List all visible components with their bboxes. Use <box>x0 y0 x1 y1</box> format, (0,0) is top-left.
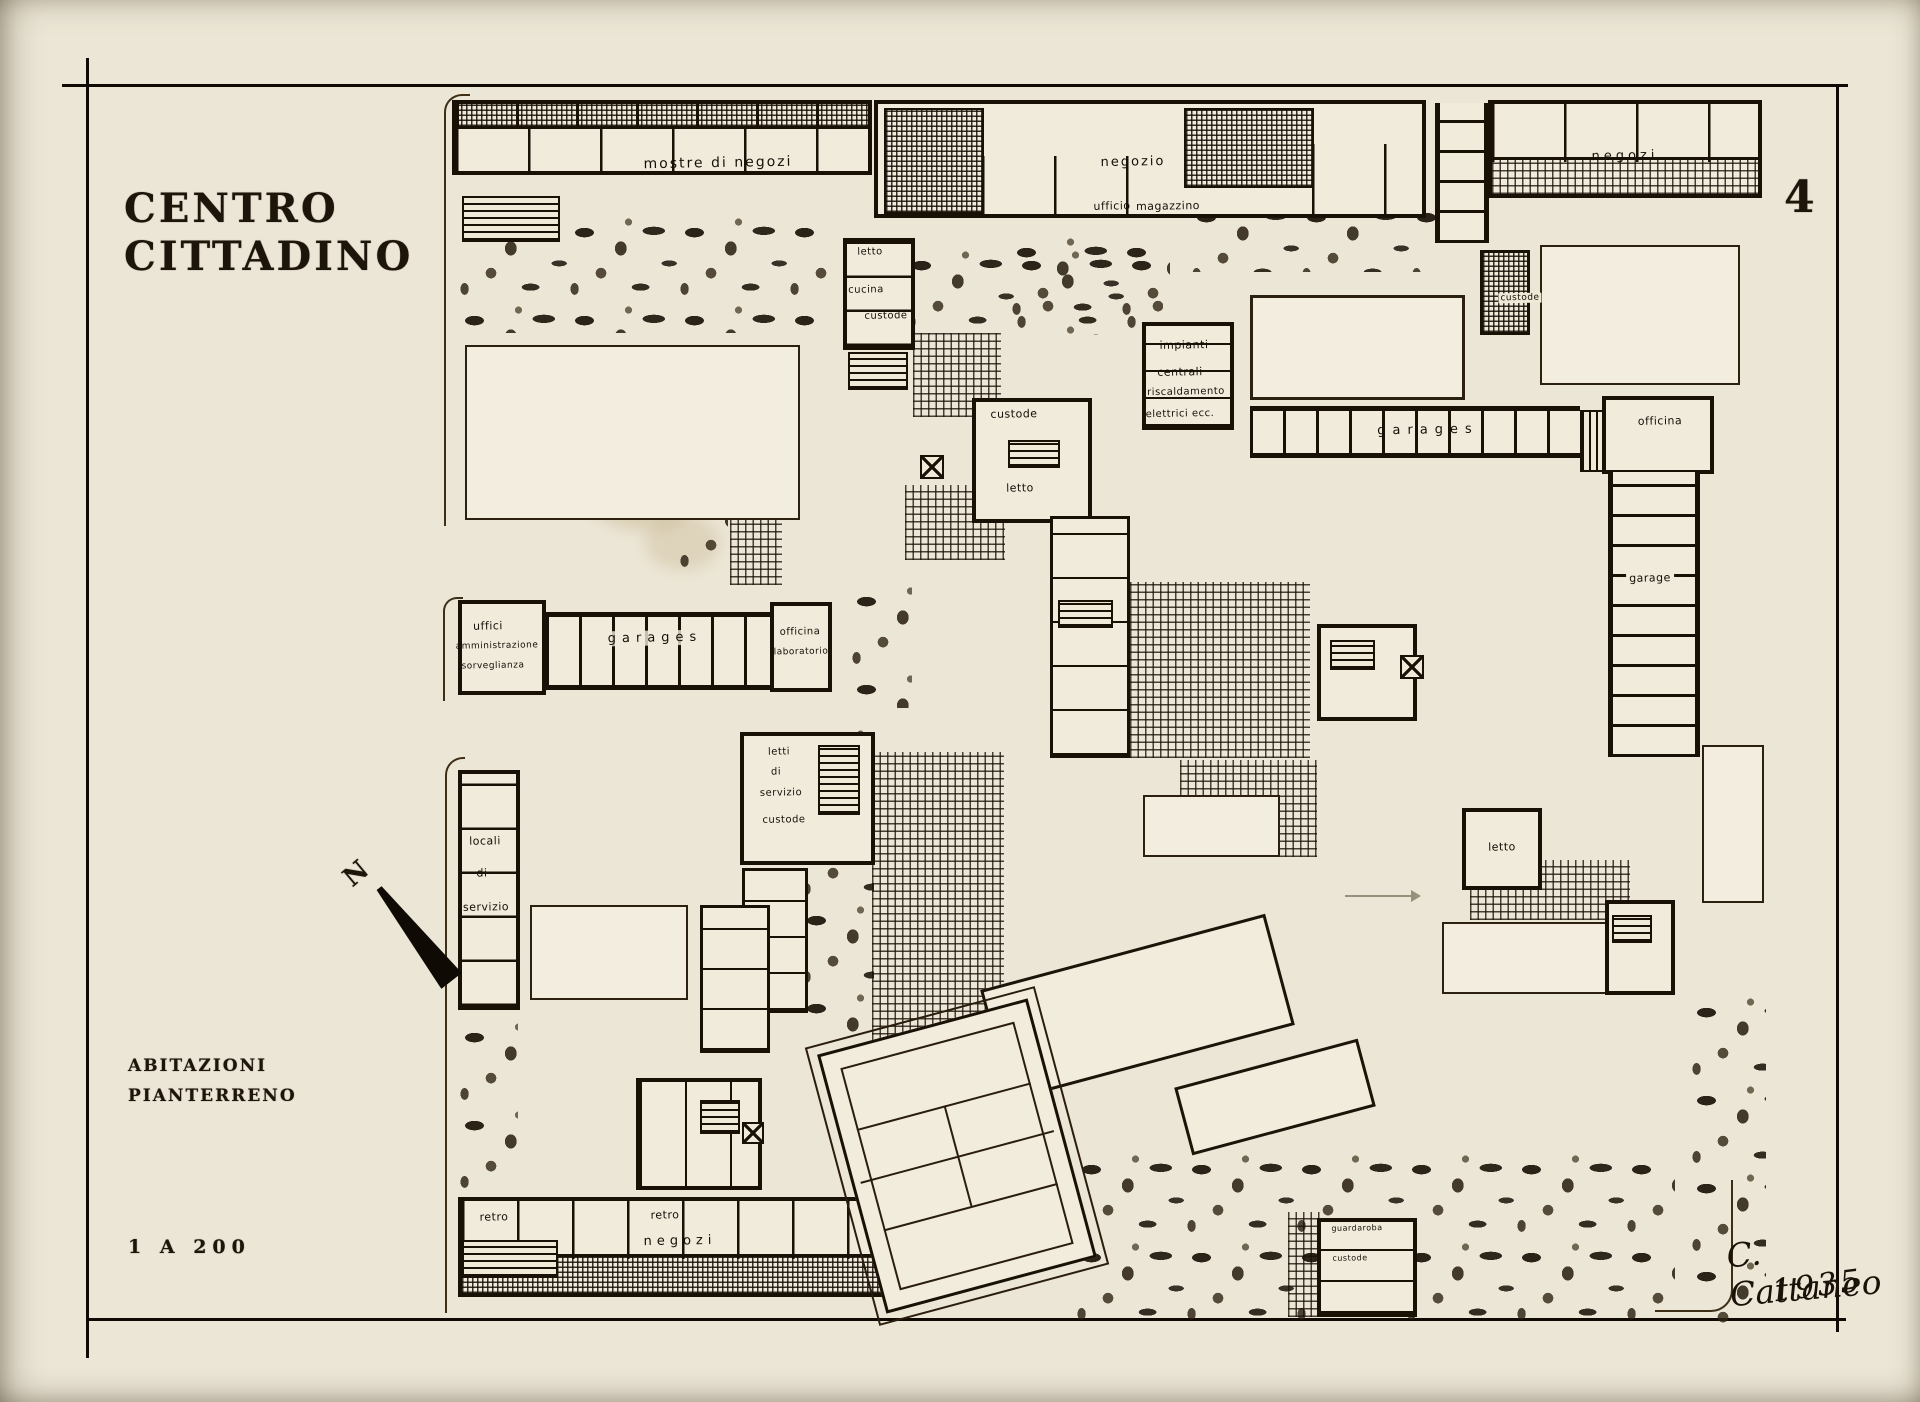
room-label: negozi <box>1591 148 1658 164</box>
room-partitions <box>1053 519 1127 755</box>
room-label: letto <box>857 246 883 257</box>
room-label: locali <box>469 834 501 848</box>
legend-line2: PIANTERRENO <box>128 1086 297 1106</box>
stairs <box>462 196 560 242</box>
room-label: sorveglianza <box>461 660 524 671</box>
legend-line1: ABITAZIONI <box>128 1056 267 1076</box>
room-label: di <box>771 766 781 777</box>
room-label: garages <box>1377 422 1479 439</box>
room-label: riscaldamento <box>1147 386 1225 398</box>
building-centre-low <box>700 905 770 1053</box>
room-label: centrali <box>1157 365 1203 379</box>
elevator <box>742 1122 764 1144</box>
plan-sheet: N mostre di negozi negozio ufficio magaz… <box>0 0 1920 1402</box>
room-label: impianti <box>1159 338 1208 352</box>
room-label: ufficio <box>1093 199 1130 213</box>
scale-note: 1 A 200 <box>128 1236 251 1258</box>
terrace <box>1184 108 1314 188</box>
frame-top <box>62 84 1848 87</box>
room-label: guardaroba <box>1331 1223 1382 1233</box>
room-label: garage <box>1626 570 1674 586</box>
frame-right <box>1836 84 1839 1332</box>
stairs <box>818 745 860 815</box>
shop-partitions <box>1312 144 1422 214</box>
entrance-arrow <box>1345 895 1411 897</box>
paved-terrace <box>1288 1212 1320 1317</box>
garages-band-w <box>546 612 776 690</box>
room-partitions <box>462 774 516 1006</box>
room-label: custode <box>1498 293 1541 304</box>
room-label: letto <box>1006 481 1034 494</box>
room-label: laboratorio <box>774 647 829 658</box>
lawn <box>530 905 688 1000</box>
stairs <box>1612 915 1652 943</box>
room-label: di <box>476 866 487 879</box>
stairs <box>700 1100 740 1134</box>
room-partitions <box>1321 1222 1413 1313</box>
room-label: servizio <box>463 900 509 914</box>
room-label: letto <box>1488 840 1516 853</box>
room-label: cucina <box>848 284 884 296</box>
room-partitions <box>640 1082 758 1186</box>
room-label: magazzino <box>1136 199 1200 213</box>
stairs <box>1058 600 1113 628</box>
room-label: officina <box>1638 414 1683 428</box>
room-label: mostre di negozi <box>643 154 792 173</box>
building-mid-slab <box>1050 516 1130 758</box>
stairs <box>848 352 908 390</box>
stall-strip <box>1435 103 1489 243</box>
building-locali-servizio <box>458 770 520 1010</box>
stairs <box>462 1240 558 1278</box>
room-label: custode <box>760 814 807 826</box>
room-label: officina <box>780 626 821 638</box>
tilted-slab <box>1174 1039 1376 1156</box>
vegetation <box>850 584 912 708</box>
vegetation <box>1010 235 1170 335</box>
room-label: elettrici ecc. <box>1146 408 1215 420</box>
stairs <box>1330 640 1375 670</box>
vegetation <box>458 1020 518 1190</box>
room-partitions <box>703 908 767 1050</box>
room-label: custode <box>1332 1253 1367 1263</box>
paved-terrace <box>1130 582 1310 758</box>
room-label: letti <box>768 746 790 757</box>
elevator <box>1400 655 1424 679</box>
sheet-title-line2: CITTADINO <box>124 233 413 280</box>
sheet-title-line1: CENTRO <box>124 185 339 232</box>
room-label: custode <box>864 310 907 322</box>
lawn <box>1540 245 1740 385</box>
room-label: negozio <box>1100 154 1165 170</box>
room-label: retro <box>479 1210 508 1224</box>
stairs <box>1008 440 1060 468</box>
building-officina-e <box>1602 396 1714 474</box>
elevator <box>920 455 944 479</box>
room-label: garages <box>604 630 707 647</box>
room-label: negozi <box>643 1233 716 1249</box>
plate-number: 4 <box>1784 172 1818 223</box>
lawn <box>465 345 800 520</box>
room-label: custode <box>990 407 1037 421</box>
room-label: retro <box>650 1208 679 1222</box>
room-label: amministrazione <box>456 640 539 651</box>
north-letter: N <box>337 853 377 893</box>
lawn <box>1702 745 1764 903</box>
frame-left <box>86 58 89 1358</box>
room-label: uffici <box>473 619 503 633</box>
hall-outline <box>1250 295 1465 400</box>
entrance-arrowhead <box>1411 890 1421 902</box>
terrace <box>884 108 984 214</box>
garage-band-e <box>1608 472 1700 757</box>
room-label: servizio <box>760 787 803 799</box>
lawn <box>1143 795 1280 857</box>
